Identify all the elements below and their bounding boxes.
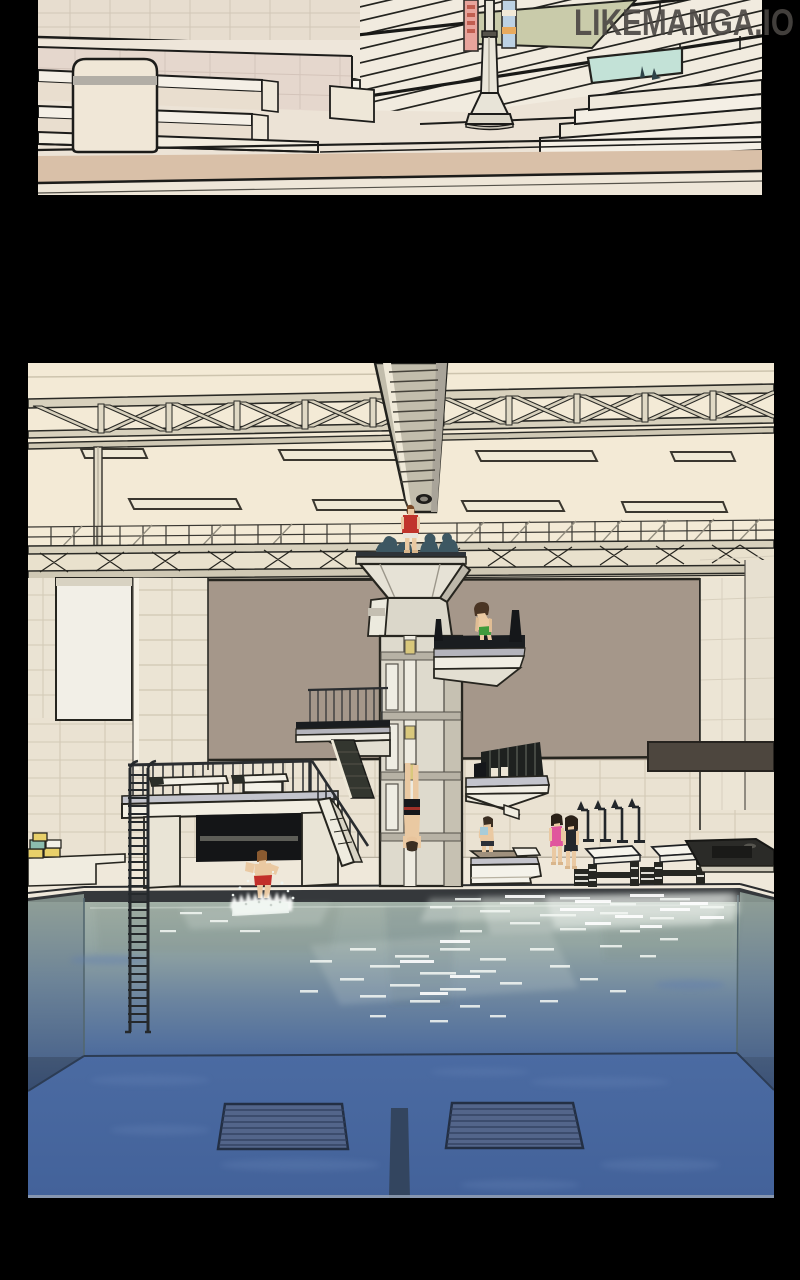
svg-text:LIKEMANGA.IO: LIKEMANGA.IO <box>574 2 794 43</box>
